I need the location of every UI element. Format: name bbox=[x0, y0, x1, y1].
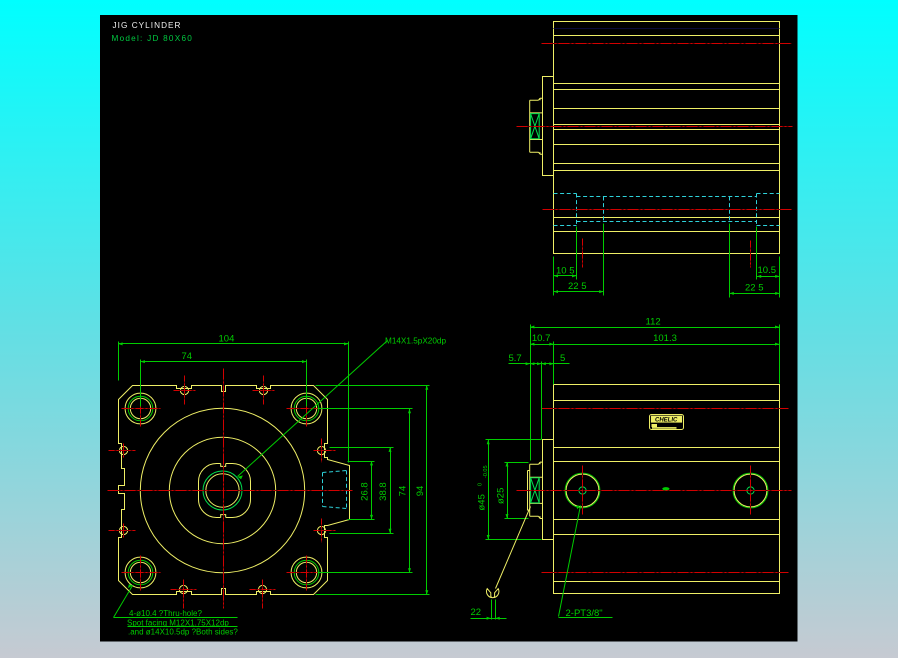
svg-text:38.8: 38.8 bbox=[378, 482, 389, 501]
svg-text:112: 112 bbox=[646, 316, 661, 327]
svg-text:M14X1.5pX20dp: M14X1.5pX20dp bbox=[385, 336, 446, 345]
svg-text:Spot facing M12X1.75X12dp: Spot facing M12X1.75X12dp bbox=[127, 618, 229, 627]
svg-text:4-ø10.4 ?Thru-hole?: 4-ø10.4 ?Thru-hole? bbox=[129, 609, 202, 618]
svg-text:.and ø14X10.5dp ?Both sides?: .and ø14X10.5dp ?Both sides? bbox=[128, 627, 238, 636]
svg-text:74: 74 bbox=[182, 351, 193, 362]
svg-text:JIG CYLINDER: JIG CYLINDER bbox=[113, 21, 182, 30]
svg-text:26.8: 26.8 bbox=[360, 482, 371, 501]
svg-text:94: 94 bbox=[415, 486, 426, 497]
svg-text:10.5: 10.5 bbox=[758, 265, 777, 276]
svg-text:22 5: 22 5 bbox=[568, 281, 587, 292]
svg-text:2-PT3/8": 2-PT3/8" bbox=[566, 608, 603, 619]
svg-text:-0.05: -0.05 bbox=[483, 465, 489, 478]
svg-text:0: 0 bbox=[478, 483, 484, 486]
svg-text:10.7: 10.7 bbox=[532, 333, 551, 344]
svg-text:101.3: 101.3 bbox=[653, 333, 677, 344]
svg-text:104: 104 bbox=[219, 333, 235, 344]
svg-text:22: 22 bbox=[471, 607, 482, 618]
svg-text:5: 5 bbox=[560, 353, 565, 364]
svg-text:Model: JD 80X60: Model: JD 80X60 bbox=[112, 34, 194, 43]
svg-text:ø25: ø25 bbox=[496, 488, 507, 504]
svg-text:74: 74 bbox=[398, 486, 409, 497]
svg-text:5.7: 5.7 bbox=[509, 353, 522, 364]
svg-text:ø45: ø45 bbox=[477, 494, 488, 510]
svg-text:22 5: 22 5 bbox=[745, 283, 764, 294]
svg-text:10 5: 10 5 bbox=[556, 265, 575, 276]
svg-text:CHELIC: CHELIC bbox=[655, 418, 678, 424]
